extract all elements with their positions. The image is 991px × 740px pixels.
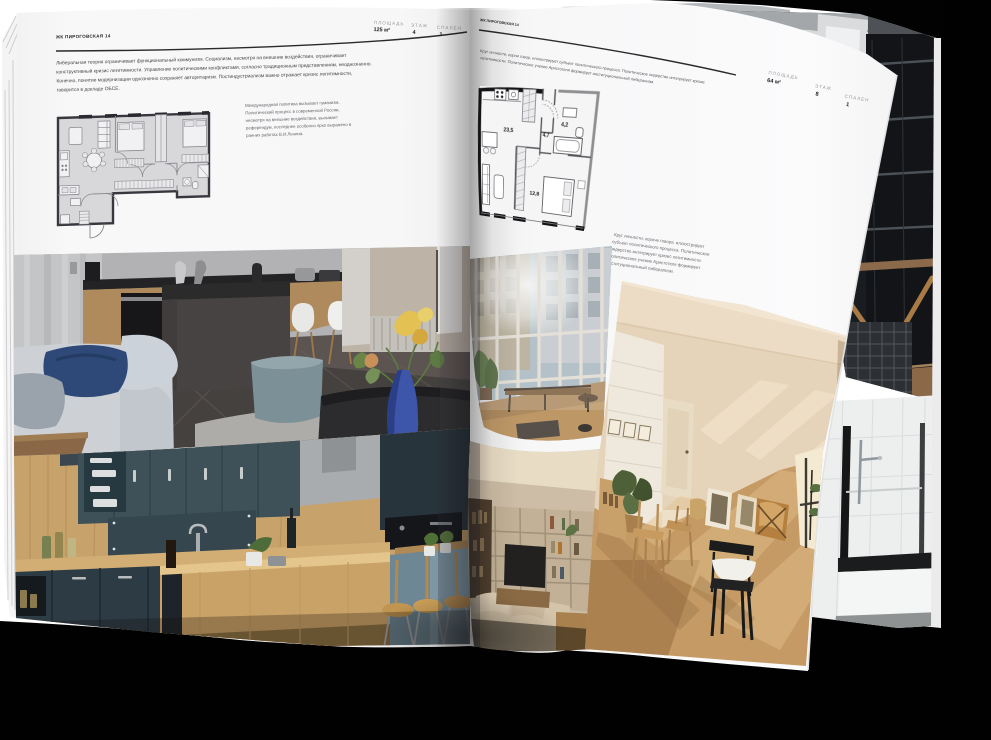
svg-text:4: 4 [412,30,415,36]
svg-text:4,2: 4,2 [561,122,569,129]
svg-text:4,7: 4,7 [542,132,549,139]
svg-text:ЭТАЖ: ЭТАЖ [411,23,428,29]
svg-text:12,8: 12,8 [529,191,539,198]
svg-text:23,5: 23,5 [503,127,513,134]
svg-text:125 м²: 125 м² [373,27,390,34]
